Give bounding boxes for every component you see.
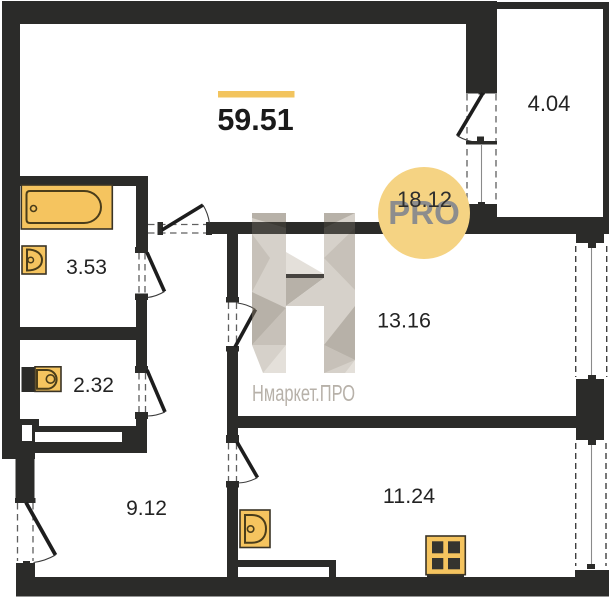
svg-text:4.04: 4.04 [528, 91, 571, 116]
svg-text:59.51: 59.51 [217, 103, 293, 137]
svg-text:18.12: 18.12 [397, 187, 452, 212]
svg-text:11.24: 11.24 [383, 484, 435, 508]
svg-text:2.32: 2.32 [73, 374, 114, 397]
svg-text:9.12: 9.12 [126, 497, 167, 520]
svg-text:13.16: 13.16 [377, 309, 431, 333]
svg-text:Нмаркет.ПРО: Нмаркет.ПРО [252, 380, 355, 406]
svg-text:3.53: 3.53 [66, 256, 107, 279]
